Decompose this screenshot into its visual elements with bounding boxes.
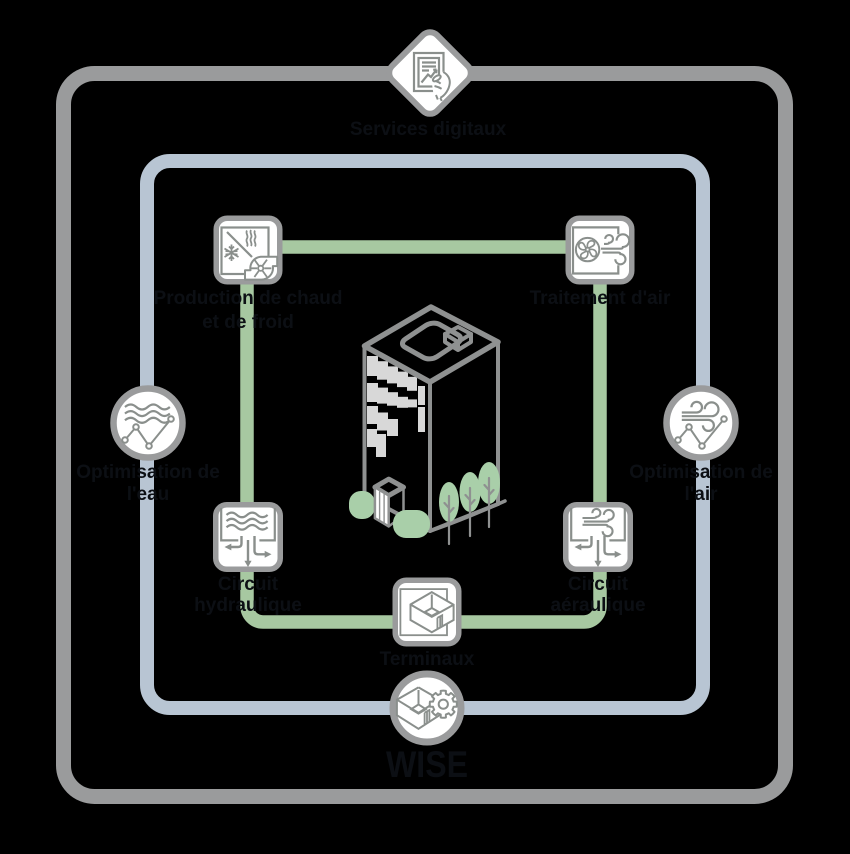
svg-text:Terminaux: Terminaux xyxy=(380,649,475,670)
svg-text:Circuit: Circuit xyxy=(568,574,629,595)
svg-text:Services digitaux: Services digitaux xyxy=(350,119,507,140)
svg-text:Circuit: Circuit xyxy=(218,574,279,595)
svg-text:Traitement d'air: Traitement d'air xyxy=(530,288,671,309)
svg-text:WISE: WISE xyxy=(386,744,468,785)
svg-text:hydraulique: hydraulique xyxy=(194,595,302,616)
svg-text:Optimisation de: Optimisation de xyxy=(629,462,773,483)
svg-text:l'eau: l'eau xyxy=(127,484,170,505)
svg-text:l'air: l'air xyxy=(684,484,718,505)
svg-text:et de froid: et de froid xyxy=(202,312,294,333)
svg-text:Optimisation de: Optimisation de xyxy=(76,462,220,483)
svg-text:aéraulique: aéraulique xyxy=(550,595,645,616)
svg-text:Production de chaud: Production de chaud xyxy=(154,288,343,309)
